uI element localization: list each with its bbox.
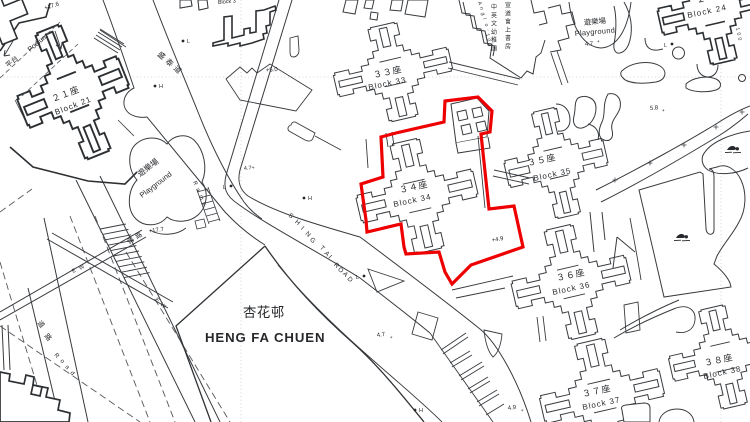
svg-text:L: L	[356, 275, 359, 281]
svg-text:L: L	[187, 39, 190, 45]
svg-text:上: 上	[505, 26, 511, 34]
svg-text:4.7+: 4.7+	[244, 165, 255, 172]
svg-text:+: +	[597, 39, 601, 45]
svg-text:會: 會	[505, 18, 511, 26]
svg-text:書: 書	[505, 34, 511, 42]
svg-text:H: H	[308, 196, 312, 202]
svg-text:4.9: 4.9	[507, 405, 517, 412]
svg-text:+5.0: +5.0	[266, 67, 279, 74]
svg-text:杏花邨: 杏花邨	[243, 305, 285, 320]
svg-text:H: H	[159, 84, 163, 90]
svg-text:房: 房	[505, 43, 511, 51]
svg-text:文: 文	[491, 20, 497, 28]
svg-text:道: 道	[505, 9, 511, 17]
svg-text:宣: 宣	[505, 1, 511, 9]
svg-text:英: 英	[491, 11, 497, 19]
svg-text:4.7: 4.7	[585, 41, 594, 48]
svg-text:HENG FA CHUEN: HENG FA CHUEN	[205, 330, 325, 345]
svg-text:園: 園	[491, 46, 497, 53]
svg-text:中: 中	[491, 3, 497, 11]
svg-text:L: L	[664, 43, 667, 49]
svg-text:H: H	[419, 408, 423, 414]
svg-text:L: L	[223, 185, 226, 191]
svg-text:4.7: 4.7	[376, 332, 386, 339]
svg-text:+: +	[662, 108, 666, 114]
svg-text:幼: 幼	[491, 28, 497, 36]
svg-text:5.8: 5.8	[650, 105, 659, 112]
